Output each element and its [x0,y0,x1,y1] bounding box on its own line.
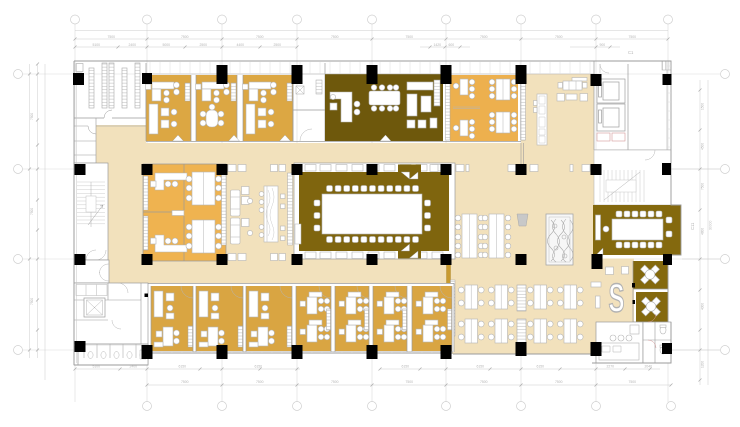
svg-text:6150: 6150 [255,365,263,369]
svg-text:30000: 30000 [709,220,713,230]
svg-text:7500: 7500 [108,35,116,39]
svg-text:1200: 1200 [701,361,705,368]
svg-text:7500: 7500 [181,35,189,39]
svg-text:7500: 7500 [331,35,339,39]
svg-text:7500: 7500 [555,380,563,384]
svg-text:7500: 7500 [555,35,563,39]
svg-text:2500: 2500 [200,43,208,47]
svg-text:2400: 2400 [129,43,137,47]
svg-text:900: 900 [600,43,606,47]
svg-text:7500: 7500 [256,35,264,39]
svg-text:2500: 2500 [274,43,282,47]
svg-text:7500: 7500 [30,113,34,120]
svg-text:7500: 7500 [480,380,488,384]
svg-text:1420: 1420 [434,43,442,47]
svg-text:7500: 7500 [406,35,414,39]
svg-text:C11: C11 [690,222,695,230]
svg-text:7500: 7500 [629,35,637,39]
svg-text:7500: 7500 [30,298,34,305]
svg-text:7500: 7500 [701,183,705,190]
svg-text:7500: 7500 [629,380,637,384]
svg-text:5000: 5000 [163,43,171,47]
svg-text:7500: 7500 [480,35,488,39]
svg-text:5100: 5100 [93,43,101,47]
svg-text:6150: 6150 [477,365,485,369]
svg-text:7500: 7500 [30,208,34,215]
svg-text:7500: 7500 [331,380,339,384]
svg-text:S: S [608,275,624,320]
svg-text:4800: 4800 [701,228,705,235]
svg-text:7500: 7500 [181,380,189,384]
svg-text:4000: 4000 [701,303,705,310]
svg-text:6150: 6150 [402,365,410,369]
svg-text:6150: 6150 [537,365,545,369]
svg-text:4400: 4400 [237,43,245,47]
svg-text:C1: C1 [628,50,634,55]
svg-text:4500: 4500 [701,143,705,150]
svg-text:1500: 1500 [701,103,705,110]
svg-text:2040: 2040 [645,365,653,369]
svg-text:600: 600 [449,43,455,47]
svg-text:6150: 6150 [179,365,187,369]
svg-text:7500: 7500 [256,380,264,384]
svg-text:2270: 2270 [607,365,615,369]
svg-text:7500: 7500 [406,380,414,384]
